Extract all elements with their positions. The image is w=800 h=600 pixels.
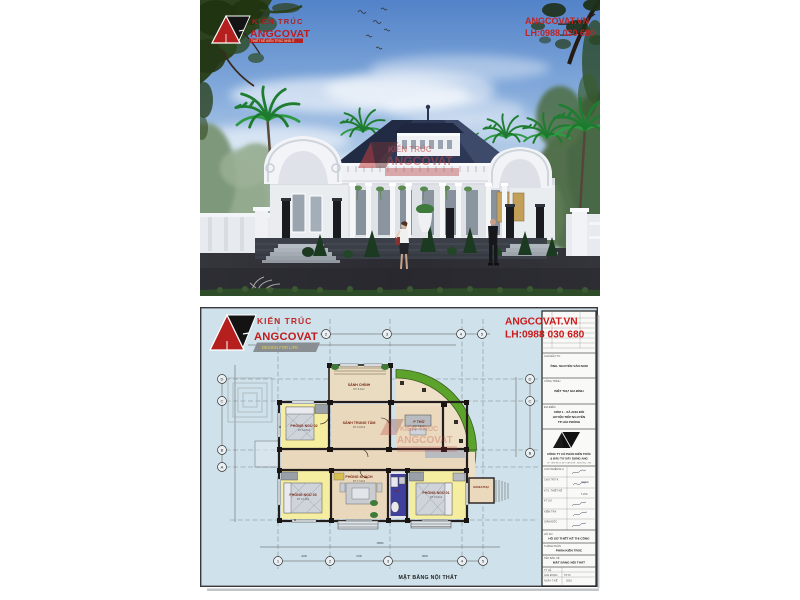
svg-text:D: D <box>221 377 224 382</box>
svg-text:4700: 4700 <box>356 554 362 558</box>
svg-text:C: C <box>529 399 532 404</box>
svg-text:KIẾN TRÚC: KIẾN TRÚC <box>257 315 312 326</box>
svg-text:DESIGN FOR LIFE: DESIGN FOR LIFE <box>262 345 298 350</box>
svg-text:KIẾN TRÚC: KIẾN TRÚC <box>252 16 304 26</box>
svg-text:PHÒNG NGỦ 02: PHÒNG NGỦ 02 <box>290 423 317 428</box>
svg-text:D: D <box>529 377 532 382</box>
svg-text:PHẦN KIẾN TRÚC: PHẦN KIẾN TRÚC <box>556 548 583 553</box>
svg-text:2016: 2016 <box>566 579 572 583</box>
svg-text:THIẾT KẾ KIẾN TRÚC NHÀ Ở: THIẾT KẾ KIẾN TRÚC NHÀ Ở <box>251 38 295 43</box>
svg-text:LH:0988 030 680: LH:0988 030 680 <box>525 28 595 38</box>
svg-text:B: B <box>529 451 532 456</box>
svg-text:MẶT BẰNG NỘI THẤT: MẶT BẰNG NỘI THẤT <box>399 573 459 581</box>
svg-text:ANGCOVAT.VN: ANGCOVAT.VN <box>525 16 589 26</box>
svg-text:ANGCOVAT.VN: ANGCOVAT.VN <box>505 317 578 328</box>
svg-text:PHÒNG NGỦ 01: PHÒNG NGỦ 01 <box>422 490 449 495</box>
svg-text:DT: 15.8m2: DT: 15.8m2 <box>430 496 443 499</box>
svg-text:ANGCOVAT: ANGCOVAT <box>254 331 318 343</box>
svg-text:SẢNH TRUNG TÂM: SẢNH TRUNG TÂM <box>343 420 376 425</box>
svg-text:SẢNH CHÍNH: SẢNH CHÍNH <box>348 382 371 387</box>
svg-text:DT: 13.4m2: DT: 13.4m2 <box>297 498 310 501</box>
svg-text:VP: LIỀN KỀ 16 KĐT VĂN KHÊ - H: VP: LIỀN KỀ 16 KĐT VĂN KHÊ - HÀ ĐÔNG - H… <box>547 462 591 465</box>
svg-text:HỒ SƠ THIẾT KẾ THI CÔNG: HỒ SƠ THIẾT KẾ THI CÔNG <box>548 536 590 541</box>
svg-text:DT: 13.8m2: DT: 13.8m2 <box>353 426 366 429</box>
svg-text:LH:0988 030 680: LH:0988 030 680 <box>505 330 585 341</box>
svg-text:V.Quân: V.Quân <box>581 481 590 484</box>
svg-text:5800: 5800 <box>422 554 428 558</box>
svg-text:WC: WC <box>395 489 399 493</box>
svg-text:4200: 4200 <box>301 554 307 558</box>
svg-text:& ĐẦU TƯ XÂY DỰNG ANG: & ĐẦU TƯ XÂY DỰNG ANG <box>550 456 588 461</box>
svg-text:ANGCOVAT: ANGCOVAT <box>397 435 453 446</box>
svg-text:ÔNG. NGUYỄN VĂN NAM: ÔNG. NGUYỄN VĂN NAM <box>550 363 588 368</box>
svg-text:KT SƯ: KT SƯ <box>544 499 553 503</box>
svg-text:PHÒNG NGỦ 03: PHÒNG NGỦ 03 <box>289 492 316 497</box>
svg-text:MẶT BẰNG NỘI THẤT: MẶT BẰNG NỘI THẤT <box>553 560 585 565</box>
svg-text:CÔNG TY CỔ PHẦN KIẾN TRÚC: CÔNG TY CỔ PHẦN KIẾN TRÚC <box>547 451 592 456</box>
svg-text:KIẾN TRÚC: KIẾN TRÚC <box>388 144 432 154</box>
svg-text:PHÒNG KHÁCH: PHÒNG KHÁCH <box>345 474 373 479</box>
svg-text:DT: 13.6m2: DT: 13.6m2 <box>298 429 311 432</box>
svg-text:A: A <box>221 465 224 470</box>
svg-text:15800: 15800 <box>376 541 384 545</box>
svg-text:T.Vinh: T.Vinh <box>581 493 588 496</box>
svg-text:TP HẢI PHÒNG: TP HẢI PHÒNG <box>558 419 581 424</box>
svg-text:BIỆT THỰ GIA ĐÌNH: BIỆT THỰ GIA ĐÌNH <box>554 388 584 393</box>
svg-text:XÓM 1 - XÃ ANH ĐỒI: XÓM 1 - XÃ ANH ĐỒI <box>554 409 585 414</box>
svg-text:DT: 17.6m2: DT: 17.6m2 <box>353 480 366 483</box>
svg-text:ANGCOVAT: ANGCOVAT <box>386 154 454 168</box>
svg-text:DT: 8.4m2: DT: 8.4m2 <box>354 388 366 391</box>
svg-text:B: B <box>221 448 224 453</box>
svg-text:P THỜ: P THỜ <box>413 419 425 424</box>
svg-text:TKTC: TKTC <box>564 573 571 577</box>
svg-text:HUYỆN TIẾP NGUYÊN: HUYỆN TIẾP NGUYÊN <box>553 414 586 419</box>
svg-text:C: C <box>221 399 224 404</box>
svg-text:GIAI ĐOẠN: GIAI ĐOẠN <box>544 573 558 577</box>
svg-text:SẢNH PHỤ: SẢNH PHỤ <box>473 484 489 489</box>
svg-text:THÀNH PHẦN: THÀNH PHẦN <box>544 544 561 548</box>
